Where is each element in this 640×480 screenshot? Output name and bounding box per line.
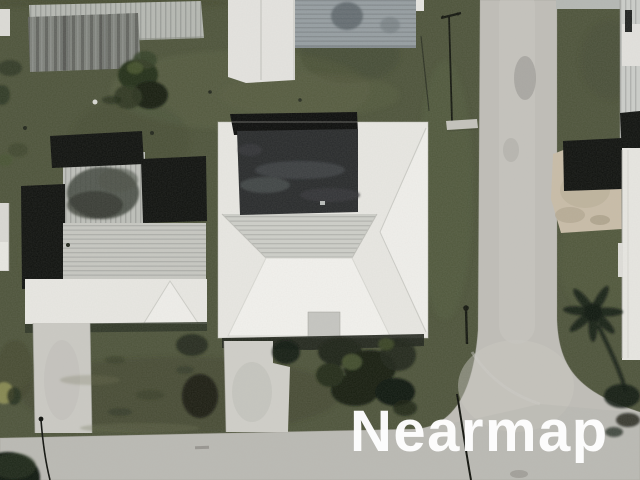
nearmap-watermark: Nearmap — [350, 403, 609, 461]
aerial-photo: Nearmap — [0, 0, 640, 480]
